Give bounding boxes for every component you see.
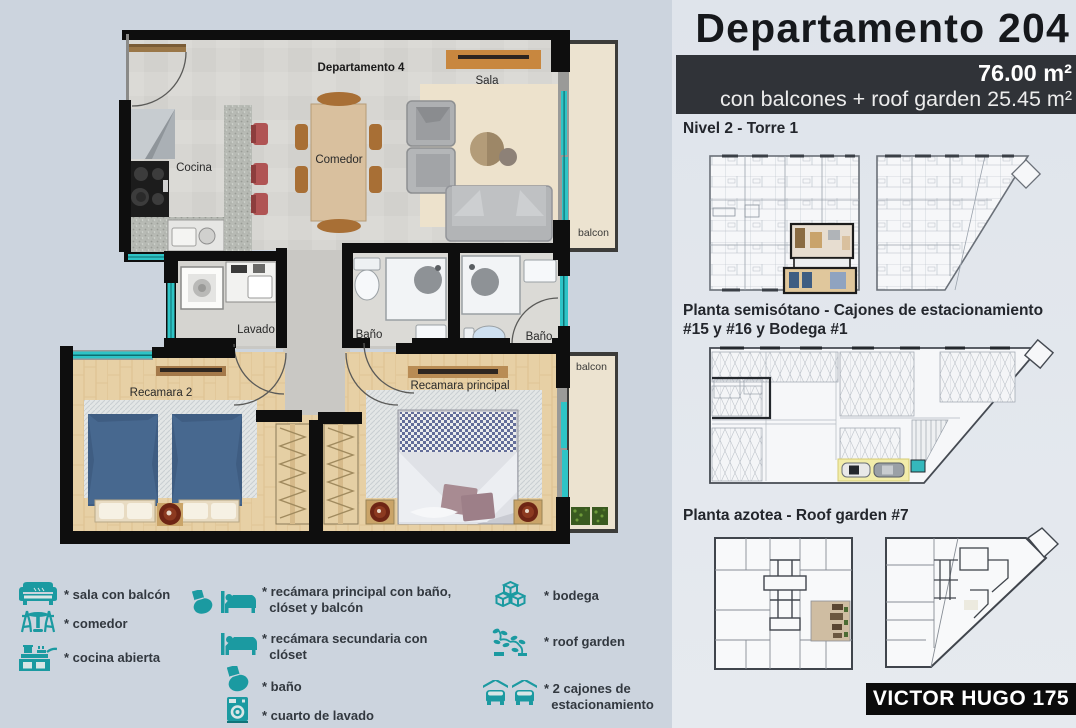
- svg-text:Baño: Baño: [356, 329, 383, 341]
- svg-text:balcon: balcon: [578, 227, 609, 239]
- svg-text:Recamara principal: Recamara principal: [410, 380, 509, 392]
- svg-text:Lavado: Lavado: [237, 324, 275, 336]
- svg-text:Comedor: Comedor: [315, 154, 362, 166]
- svg-text:Baño: Baño: [526, 331, 553, 343]
- svg-text:Departamento 4: Departamento 4: [318, 62, 406, 74]
- svg-text:Sala: Sala: [475, 75, 499, 87]
- svg-text:balcon: balcon: [576, 361, 607, 373]
- svg-text:Recamara 2: Recamara 2: [130, 387, 193, 399]
- svg-text:Cocina: Cocina: [176, 162, 212, 174]
